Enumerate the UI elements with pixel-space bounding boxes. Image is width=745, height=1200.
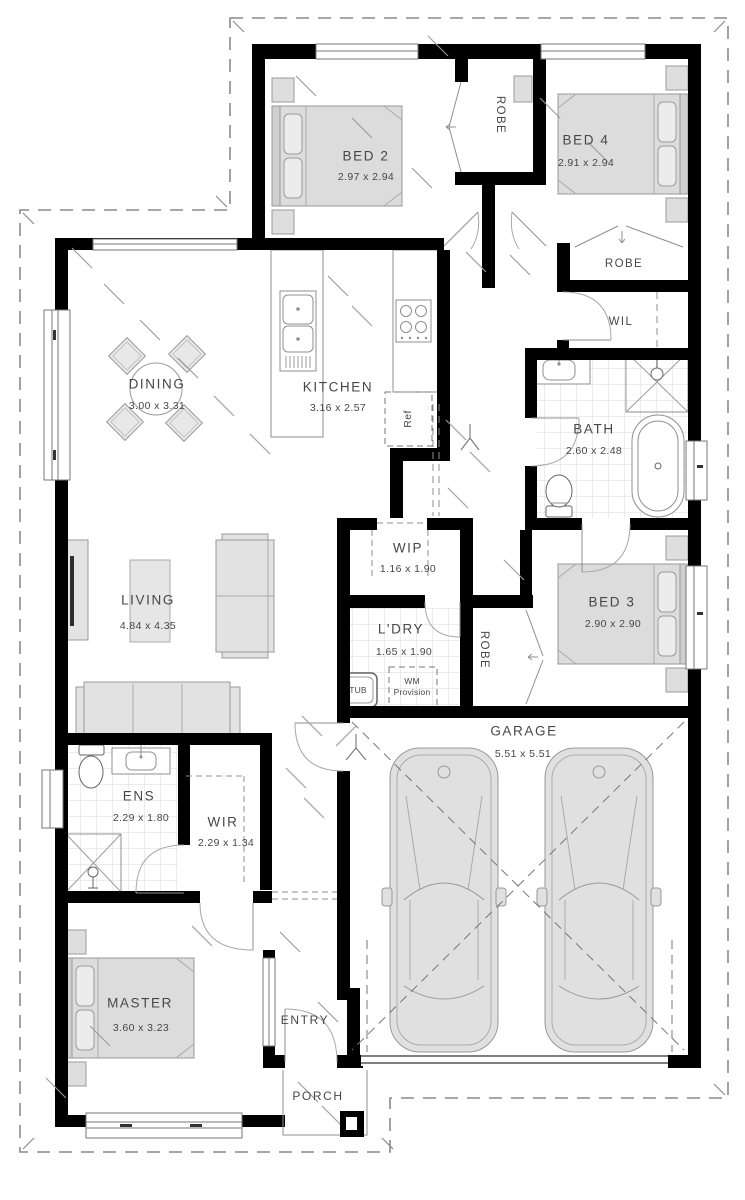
window (42, 770, 63, 828)
window (316, 44, 418, 59)
shower-icon (66, 834, 121, 892)
label-robe-bed4: ROBE (605, 258, 643, 270)
door-bed4 (511, 212, 546, 249)
label-robe-bed2: ROBE (494, 96, 506, 134)
room-label-ldry: L'DRY (378, 622, 424, 637)
window (86, 1113, 242, 1138)
room-label-wir: WIR (207, 815, 238, 830)
toilet-icon (79, 745, 104, 788)
room-label-kitchen: KITCHEN (303, 380, 373, 395)
bifold-robe-bed4 (575, 226, 683, 247)
room-dims-master: 3.60 x 3.23 (113, 1022, 169, 1034)
label-wil: WIL (609, 316, 634, 328)
room-dims-bed4: 2.91 x 2.94 (558, 157, 614, 169)
room-label-bed2: BED 2 (342, 149, 389, 164)
room-label-bath: BATH (573, 422, 614, 437)
bifold-robe-bed2 (446, 82, 461, 172)
room-dims-bed2: 2.97 x 2.94 (338, 171, 394, 183)
label-entry: ENTRY (281, 1013, 329, 1027)
window (44, 310, 70, 480)
label-tub: TUB (349, 685, 367, 695)
label-wm-line2: Provision (394, 687, 431, 697)
bed3-furniture (558, 536, 688, 692)
bathtub-icon (632, 415, 684, 517)
room-label-master: MASTER (107, 996, 173, 1011)
toilet-icon (546, 475, 572, 517)
label-fridge: Ref (402, 410, 414, 428)
room-dims-dining: 3.00 x 3.31 (129, 400, 185, 412)
window (263, 958, 275, 1046)
room-label-bed3: BED 3 (588, 595, 635, 610)
garage-cars (382, 748, 661, 1052)
room-label-ens: ENS (123, 789, 156, 804)
room-dims-living: 4.84 x 4.35 (120, 620, 176, 632)
room-dims-garage: 5.51 x 5.51 (495, 748, 551, 760)
car-icon (537, 748, 661, 1052)
window (686, 441, 707, 500)
room-dims-ens: 2.29 x 1.80 (113, 812, 169, 824)
window (541, 44, 645, 59)
car-icon (382, 748, 506, 1052)
living-furniture (63, 534, 274, 742)
room-dims-wir: 2.29 x 1.34 (198, 837, 254, 849)
door-garage-internal (295, 723, 343, 771)
floor-plan: BED 2 2.97 x 2.94 ROBE BED 4 2.91 x 2.94… (0, 0, 745, 1200)
room-label-bed4: BED 4 (562, 133, 609, 148)
door-bed2 (444, 212, 479, 249)
bifold-robe-bed3 (526, 610, 543, 704)
room-dims-bed3: 2.90 x 2.90 (585, 618, 641, 630)
window (93, 239, 237, 250)
window (686, 566, 707, 669)
room-dims-bath: 2.60 x 2.48 (566, 445, 622, 457)
tv-icon (70, 556, 74, 626)
room-dims-ldry: 1.65 x 1.90 (376, 646, 432, 658)
room-label-living: LIVING (121, 593, 175, 608)
room-dims-wip: 1.16 x 1.90 (380, 563, 436, 575)
room-label-wip: WIP (393, 541, 423, 556)
room-dims-kitchen: 3.16 x 2.57 (310, 402, 366, 414)
porch-structure (283, 1070, 367, 1137)
label-porch: PORCH (292, 1089, 343, 1103)
label-wm-line1: WM (404, 676, 420, 686)
room-label-garage: GARAGE (490, 724, 557, 739)
door-wil (563, 292, 611, 340)
room-label-dining: DINING (129, 377, 186, 392)
shower-icon (626, 352, 688, 412)
door-master (200, 903, 253, 950)
label-robe-bed3: ROBE (478, 631, 490, 669)
cooktop-icon (396, 300, 431, 342)
garage-door (361, 1053, 668, 1066)
